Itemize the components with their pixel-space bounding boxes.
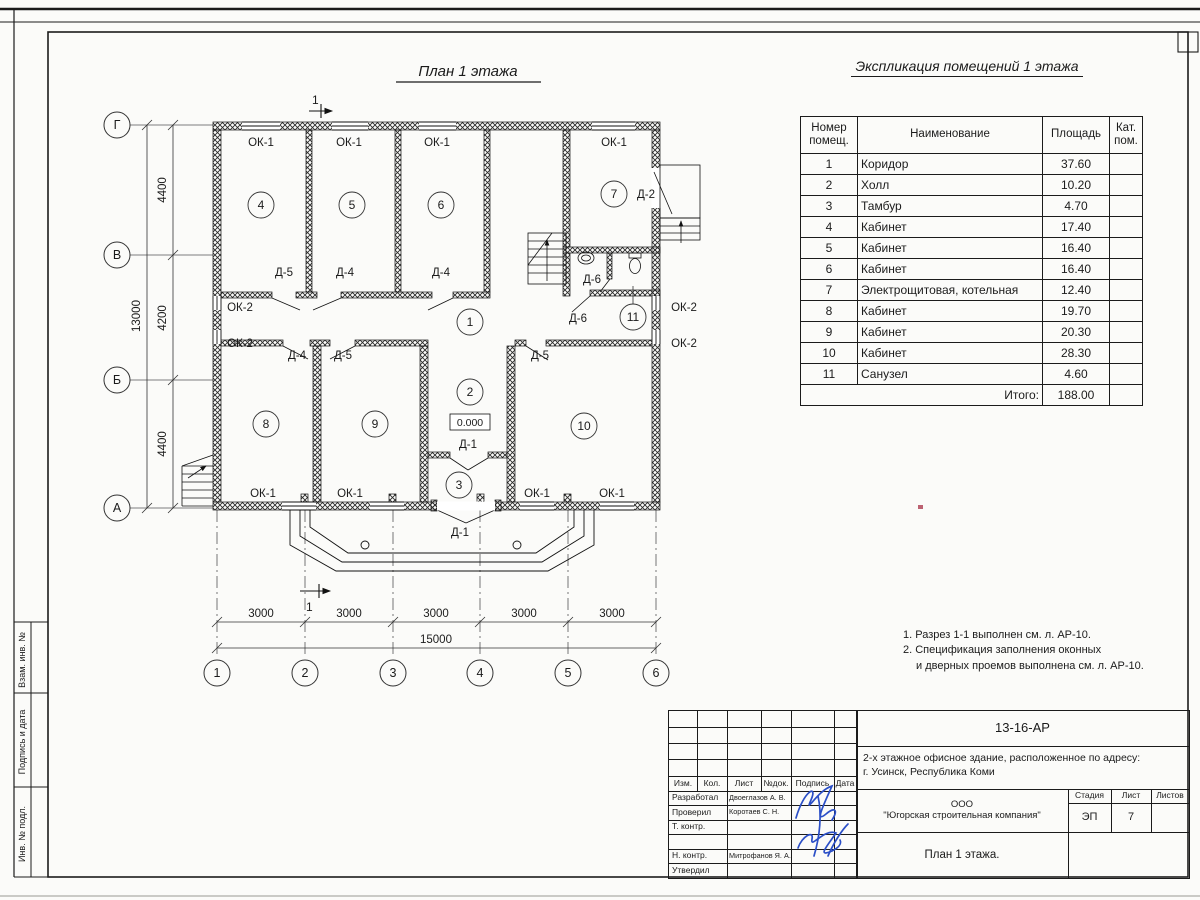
svg-text:Д-2: Д-2 [637, 189, 655, 201]
note-line: 1. Разрез 1-1 выполнен см. л. АР-10. [903, 628, 1193, 643]
svg-text:4: 4 [258, 198, 265, 212]
svg-text:13000: 13000 [131, 300, 143, 332]
exterior-stair-left [182, 455, 213, 506]
svg-text:6: 6 [653, 666, 660, 680]
drawing-sheet: { "plan": { "title": "План 1 этажа", "ro… [0, 0, 1200, 900]
svg-text:11: 11 [627, 310, 640, 324]
svg-text:Б: Б [113, 373, 121, 387]
svg-text:1: 1 [214, 666, 221, 680]
stamp-role: Проверил [672, 805, 727, 820]
schedule-total-value: 188.00 [1043, 385, 1110, 406]
stamp-role: Разработал [672, 791, 727, 805]
svg-text:5: 5 [349, 198, 356, 212]
doc-number: 13-16-АР [856, 711, 1189, 746]
schedule-header-category: Кат. пом. [1110, 117, 1143, 154]
sheet-title: План 1 этажа. [856, 832, 1068, 878]
sheets-value [1151, 803, 1189, 832]
stamp-col-izm: Изм. [669, 776, 697, 791]
table-row: 3Тамбур4.70 [801, 196, 1143, 217]
svg-text:5: 5 [565, 666, 572, 680]
svg-text:7: 7 [611, 187, 618, 201]
svg-text:1: 1 [312, 93, 319, 107]
svg-text:Д-6: Д-6 [583, 274, 601, 286]
project-line2: г. Усинск, Республика Коми [863, 765, 1183, 779]
stage-value: ЭП [1068, 803, 1111, 832]
stamp-name: Коротаев С. Н. [729, 805, 791, 820]
room-schedule-table: Номер помещ. Наименование Площадь Кат. п… [800, 116, 1143, 406]
svg-text:Д-1: Д-1 [451, 527, 469, 539]
project-line1: 2-х этажное офисное здание, расположенно… [863, 751, 1183, 765]
svg-text:4200: 4200 [157, 305, 169, 331]
svg-text:ОК-1: ОК-1 [599, 488, 625, 500]
margin-label-inv: Инв. № подл. [17, 806, 27, 862]
schedule-title: Экспликация помещений 1 этажа [800, 58, 1134, 74]
bottom-dimensions: 3000 3000 3000 3000 3000 15000 [212, 608, 661, 653]
svg-text:8: 8 [263, 417, 270, 431]
plan-title: План 1 этажа [396, 63, 541, 82]
table-row: 1Коридор37.60 [801, 154, 1143, 175]
stamp-col-list: Лист [727, 776, 761, 791]
svg-text:1: 1 [306, 600, 313, 614]
svg-text:3: 3 [456, 478, 463, 492]
svg-text:3000: 3000 [423, 608, 449, 620]
svg-text:Г: Г [114, 118, 121, 132]
svg-text:ОК-2: ОК-2 [227, 302, 253, 314]
svg-text:Д-1: Д-1 [459, 439, 477, 451]
schedule-header-number: Номер помещ. [801, 117, 858, 154]
table-row: 10Кабинет28.30 [801, 343, 1143, 364]
svg-text:ОК-1: ОК-1 [424, 137, 450, 149]
company-line2: "Югорская строительная компания" [883, 811, 1041, 821]
stamp-role: Утвердил [672, 863, 727, 878]
svg-text:Д-4: Д-4 [336, 267, 355, 279]
svg-text:4: 4 [477, 666, 484, 680]
interior-stair [528, 233, 566, 284]
svg-text:15000: 15000 [420, 634, 452, 646]
stamp-name: Митрофанов Я. А. [729, 849, 791, 863]
svg-text:ОК-1: ОК-1 [248, 137, 274, 149]
svg-text:Д-5: Д-5 [334, 350, 352, 362]
sheet-value: 7 [1111, 803, 1151, 832]
stamp-name: Двоеглазов А. В. [729, 791, 791, 805]
left-dimensions: 4400 4200 4400 13000 [131, 120, 178, 513]
stamp-col-kol: Кол. [697, 776, 727, 791]
svg-text:ОК-1: ОК-1 [337, 488, 363, 500]
svg-text:План 1 этажа: План 1 этажа [418, 63, 517, 80]
stamp-role: Н. контр. [672, 849, 727, 863]
signature-stroke [796, 786, 835, 820]
level-mark: 0.000 [450, 414, 490, 430]
table-row: 8Кабинет19.70 [801, 301, 1143, 322]
svg-text:ОК-1: ОК-1 [336, 137, 362, 149]
grid-bubbles: Г В Б А 1 2 3 4 5 6 [104, 112, 669, 686]
table-row: 11Санузел4.60 [801, 364, 1143, 385]
title-block: Изм. Кол. Лист №док. Подпись Дата Разраб… [668, 710, 1190, 879]
handwritten-signatures [784, 778, 884, 876]
svg-text:Д-4: Д-4 [432, 267, 451, 279]
svg-text:Д-5: Д-5 [275, 267, 293, 279]
porch-column [361, 541, 369, 549]
svg-text:ОК-2: ОК-2 [227, 338, 253, 350]
svg-text:3000: 3000 [511, 608, 537, 620]
svg-text:3000: 3000 [248, 608, 274, 620]
svg-text:ОК-1: ОК-1 [250, 488, 276, 500]
project-description: 2-х этажное офисное здание, расположенно… [863, 747, 1183, 792]
drawing-notes: 1. Разрез 1-1 выполнен см. л. АР-10. 2. … [903, 628, 1193, 674]
table-row: 7Электрощитовая, котельная12.40 [801, 280, 1143, 301]
svg-text:0.000: 0.000 [457, 417, 483, 429]
sink-fixture [578, 252, 594, 264]
section-mark-top: 1 [309, 93, 332, 118]
left-margin-labels: Взам. инв. № Подпись и дата Инв. № подл. [17, 632, 27, 862]
margin-label-podpis: Подпись и дата [17, 710, 27, 775]
stamp-role [672, 834, 727, 849]
svg-text:4400: 4400 [157, 177, 169, 203]
svg-text:4400: 4400 [157, 431, 169, 457]
svg-text:2: 2 [467, 385, 474, 399]
company-line1: ООО [951, 800, 973, 810]
margin-label-vzam: Взам. инв. № [17, 632, 27, 688]
exterior-stair-right [660, 165, 700, 243]
schedule-total-label: Итого: [801, 385, 1043, 406]
svg-text:А: А [113, 501, 122, 515]
entrance-porch [290, 510, 594, 571]
svg-text:ОК-2: ОК-2 [671, 302, 697, 314]
svg-text:1: 1 [467, 315, 474, 329]
svg-text:ОК-1: ОК-1 [524, 488, 550, 500]
note-line: и дверных проемов выполнена см. л. АР-10… [903, 659, 1193, 674]
table-row: 6Кабинет16.40 [801, 259, 1143, 280]
porch-column [513, 541, 521, 549]
svg-text:Д-5: Д-5 [531, 350, 549, 362]
toilet-fixture [629, 253, 641, 274]
schedule-header-name: Наименование [858, 117, 1043, 154]
interior-walls [221, 130, 660, 511]
signature-stroke [814, 796, 820, 856]
svg-text:ОК-1: ОК-1 [601, 137, 627, 149]
svg-text:3000: 3000 [336, 608, 362, 620]
section-mark-bottom: 1 [300, 584, 330, 614]
company-name: ООО "Югорская строительная компания" [856, 789, 1068, 832]
svg-text:ОК-2: ОК-2 [671, 338, 697, 350]
svg-text:2: 2 [302, 666, 309, 680]
note-line: 2. Спецификация заполнения оконных [903, 643, 1193, 658]
svg-text:Д-4: Д-4 [288, 350, 307, 362]
sheets-label: Листов [1151, 789, 1189, 803]
table-row: 2Холл10.20 [801, 175, 1143, 196]
stamp-role: Т. контр. [672, 820, 727, 834]
svg-text:6: 6 [438, 198, 445, 212]
scan-artifact-dot [918, 505, 923, 509]
svg-text:9: 9 [372, 417, 379, 431]
svg-text:Д-6: Д-6 [569, 313, 587, 325]
schedule-total-row: Итого: 188.00 [801, 385, 1143, 406]
table-row: 5Кабинет16.40 [801, 238, 1143, 259]
stage-label: Стадия [1068, 789, 1111, 803]
svg-text:В: В [113, 248, 121, 262]
svg-text:3: 3 [390, 666, 397, 680]
svg-text:3000: 3000 [599, 608, 625, 620]
schedule-header-area: Площадь [1043, 117, 1110, 154]
sheet-label: Лист [1111, 789, 1151, 803]
svg-text:10: 10 [577, 419, 591, 433]
table-row: 9Кабинет20.30 [801, 322, 1143, 343]
table-row: 4Кабинет17.40 [801, 217, 1143, 238]
